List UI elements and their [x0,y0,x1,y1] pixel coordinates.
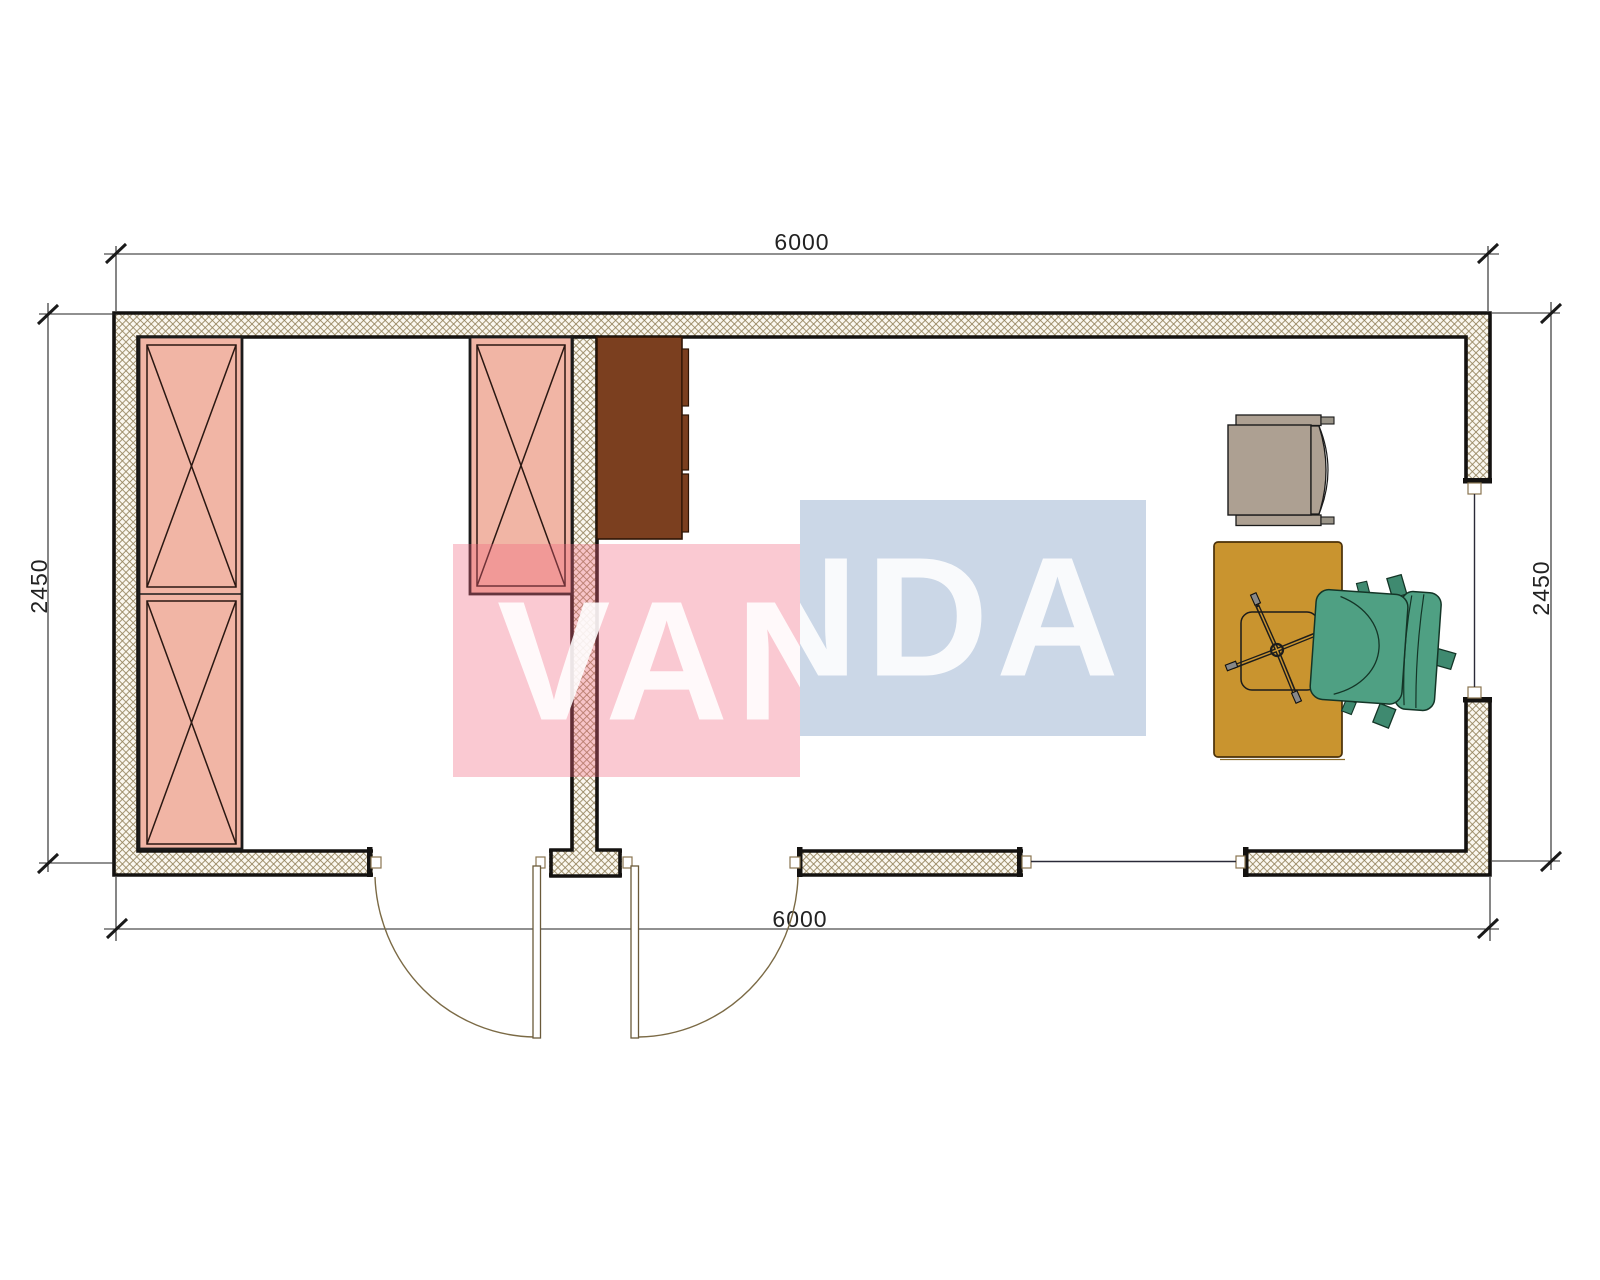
svg-text:2450: 2450 [26,558,52,613]
svg-text:2450: 2450 [1528,560,1554,615]
svg-text:6000: 6000 [774,229,829,255]
svg-text:6000: 6000 [772,906,827,932]
